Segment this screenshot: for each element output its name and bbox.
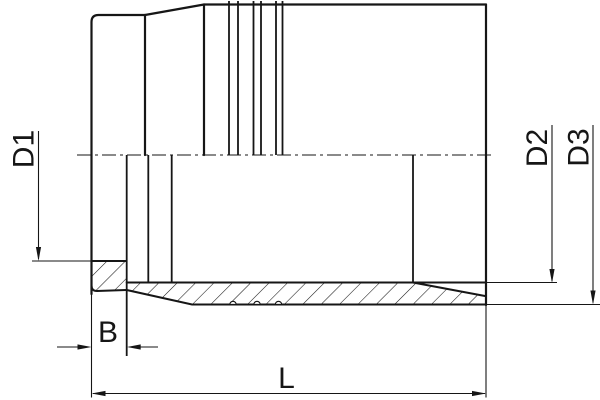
dim-label-b: B [98,316,118,349]
drawing-background [0,0,600,400]
dim-label-l: L [278,362,295,395]
dim-label-d2: D2 [521,129,554,167]
collar-section-hatch [92,261,127,291]
technical-drawing-page: D1 D2 D3 B L [0,0,600,400]
dim-label-d1: D1 [8,130,41,168]
dim-label-d3: D3 [563,128,596,166]
fitting-cross-section-drawing: D1 D2 D3 B L [0,0,600,400]
